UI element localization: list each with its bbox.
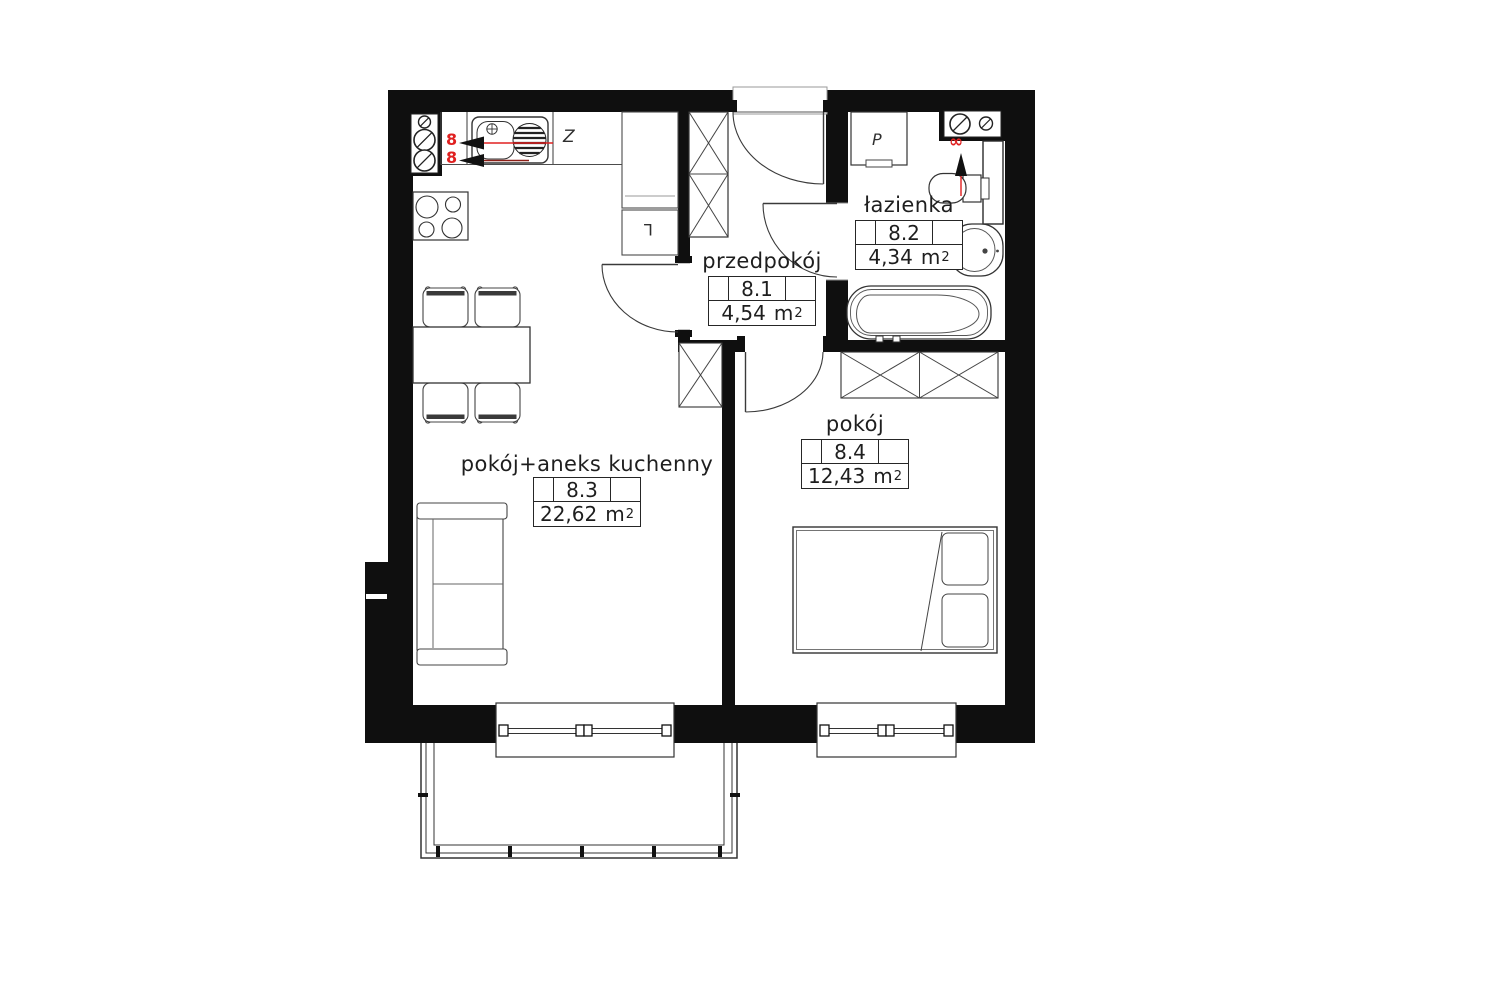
area-unit: m <box>605 502 624 526</box>
hallway-wardrobe <box>689 112 728 237</box>
window-room-8-4 <box>817 703 956 757</box>
stove <box>413 192 468 240</box>
door-room-8-3 <box>602 256 692 337</box>
faucet-icon <box>487 124 498 135</box>
floor-plan: przedpokój 8.1 4,54 m 2 łazienka 8.2 4,3… <box>0 0 1500 1000</box>
arrow-up-icon <box>955 153 967 176</box>
stamp-area-row: 4,54 m 2 <box>709 301 815 325</box>
railing-posts <box>418 793 740 857</box>
area-unit-exponent: 2 <box>894 469 902 484</box>
area-unit-exponent: 2 <box>626 507 634 522</box>
door-room-8-4 <box>737 336 831 412</box>
riser-mark-kitchen-bottom: 8 <box>446 150 457 166</box>
area-unit-exponent: 2 <box>941 250 949 265</box>
stamp-cell-right <box>933 221 962 244</box>
room-stamp-8-3: 8.3 22,62 m 2 <box>533 477 641 527</box>
room-number: 8.2 <box>876 221 933 244</box>
dishwasher-label: Z <box>563 127 575 147</box>
room-stamp-8-4: 8.4 12,43 m 2 <box>801 439 909 489</box>
room-name-przedpokoj: przedpokój <box>702 249 822 273</box>
floor-plan-drawing <box>0 0 1500 1000</box>
wardrobe-room-8-4 <box>841 352 998 398</box>
stamp-cell-left <box>856 221 876 244</box>
area-unit: m <box>873 464 892 488</box>
kitchen-riser-shaft <box>407 111 442 176</box>
window-room-8-3 <box>496 703 674 757</box>
room-number: 8.4 <box>822 440 879 463</box>
room-stamp-8-2: 8.2 4,34 m 2 <box>855 220 963 270</box>
chair <box>423 287 468 327</box>
stamp-area-row: 12,43 m 2 <box>802 464 908 488</box>
room-number: 8.3 <box>554 478 611 501</box>
room-name-pokoj-aneks: pokój+aneks kuchenny <box>461 452 713 476</box>
pillow <box>942 594 988 647</box>
riser-mark-kitchen-top: 8 <box>446 132 457 148</box>
chair <box>475 383 520 423</box>
bed <box>793 527 997 653</box>
room-area-value: 12,43 <box>808 464 865 488</box>
sink-drainer <box>513 124 546 157</box>
kitchen-tall-cabinet <box>622 112 678 208</box>
chair <box>475 287 520 327</box>
room-area-value: 4,54 <box>721 301 766 325</box>
fridge-label: L <box>644 220 653 239</box>
room-name-pokoj: pokój <box>826 412 884 436</box>
area-unit: m <box>921 245 940 269</box>
wall-seams <box>366 594 387 599</box>
stamp-number-row: 8.2 <box>856 221 962 245</box>
room-area-value: 4,34 <box>868 245 913 269</box>
stamp-cell-right <box>879 440 908 463</box>
stamp-cell-right <box>786 277 815 300</box>
stamp-number-row: 8.1 <box>709 277 815 301</box>
balcony-railing <box>418 743 740 858</box>
stamp-cell-left <box>802 440 822 463</box>
chair <box>423 383 468 423</box>
sofa <box>417 503 507 665</box>
stamp-cell-right <box>611 478 640 501</box>
stamp-cell-left <box>534 478 554 501</box>
dining-table <box>413 327 530 383</box>
stamp-cell-left <box>709 277 729 300</box>
entrance-door <box>729 87 831 184</box>
washing-machine-label: P <box>872 130 882 149</box>
room-stamp-8-1: 8.1 4,54 m 2 <box>708 276 816 326</box>
riser-mark-bathroom: ∞ <box>949 134 963 151</box>
pillow <box>942 533 988 585</box>
stamp-number-row: 8.4 <box>802 440 908 464</box>
area-unit-exponent: 2 <box>794 306 802 321</box>
bathtub <box>847 286 991 342</box>
area-unit: m <box>774 301 793 325</box>
shaft-box-room-8-3 <box>679 343 722 407</box>
stamp-number-row: 8.3 <box>534 478 640 502</box>
room-area-value: 22,62 <box>540 502 597 526</box>
stamp-area-row: 22,62 m 2 <box>534 502 640 526</box>
stamp-area-row: 4,34 m 2 <box>856 245 962 269</box>
room-name-lazienka: łazienka <box>864 193 954 217</box>
room-number: 8.1 <box>729 277 786 300</box>
